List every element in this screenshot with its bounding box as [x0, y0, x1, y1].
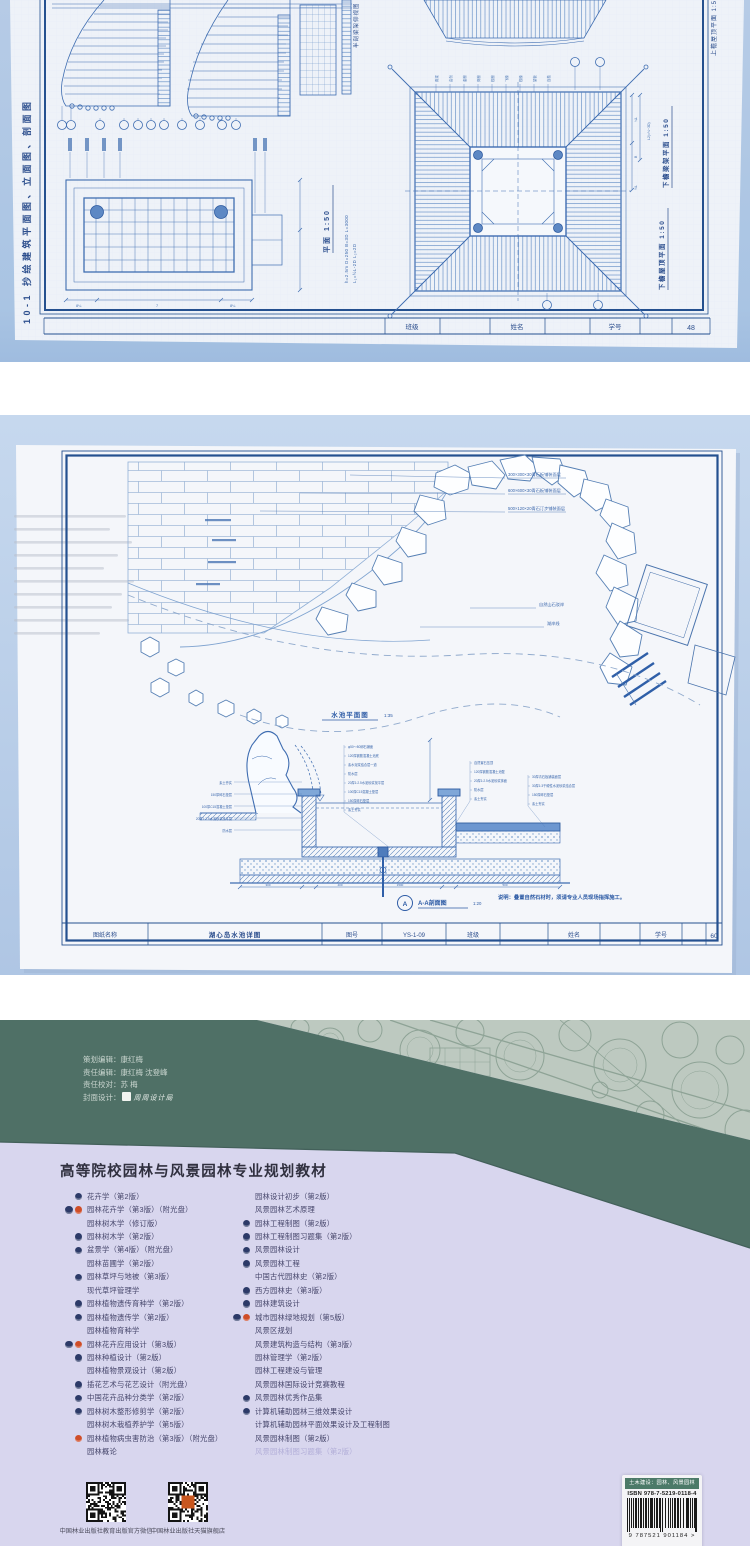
- section-title: A-A剖面图: [418, 899, 447, 907]
- series-badge-icon: [243, 1287, 251, 1295]
- book-list-item: 风景园林设计: [228, 1244, 498, 1257]
- book-list-item: 花卉学（第2版）: [60, 1190, 235, 1203]
- award-badge-icon: [243, 1314, 251, 1322]
- pond-plan-scale: 1:35: [384, 713, 393, 718]
- section-marker: A: [403, 901, 408, 908]
- name-cell-label: 姓名: [511, 322, 524, 331]
- series-badge-icon: [243, 1220, 251, 1228]
- svg-text:150厚碎石垫层: 150厚碎石垫层: [348, 798, 369, 803]
- book-title: 花卉学（第2版）: [87, 1192, 144, 1202]
- svg-text:檐椽: 檐椽: [518, 75, 523, 82]
- book-title: 园林管理学（第2版）: [255, 1353, 327, 1363]
- svg-text:防水层: 防水层: [474, 787, 484, 792]
- student-id-cell-label: 学号: [609, 322, 623, 331]
- book-list-item: 中国古代园林史（第2版）: [228, 1271, 498, 1284]
- series-badge-icon: [243, 1233, 251, 1241]
- editor-credits: 策划编辑：康红梅 责任编辑：康红梅 沈登峰 责任校对：苏 梅 封面设计：周周设计…: [83, 1054, 174, 1105]
- book-title: 风景园林国际设计竞赛教程: [255, 1380, 345, 1390]
- sheet-name-label: 图纸名称: [93, 931, 117, 939]
- book-title: 园林植物病虫害防治（第3版）（附光盘）: [87, 1434, 223, 1444]
- svg-text:素水泥浆结合层一道: 素水泥浆结合层一道: [348, 762, 377, 767]
- plan-note-1: h=2.5m D=250 B=3D L=3000: [344, 215, 349, 283]
- svg-text:自然置石压顶: 自然置石压顶: [474, 760, 494, 765]
- credit-line: 责任校对：苏 梅: [83, 1079, 174, 1092]
- book-back-cover: 策划编辑：康红梅 责任编辑：康红梅 沈登峰 责任校对：苏 梅 封面设计：周周设计…: [0, 1020, 750, 1546]
- page-number: 48: [687, 325, 695, 332]
- book-title: 园林花卉应用设计（第3版）: [87, 1340, 181, 1350]
- book-title: 风景园林制图（第2版）: [255, 1434, 334, 1444]
- book-title: 现代草坪管理学: [87, 1286, 139, 1296]
- book-list-item: 风景园林优秀作品集: [228, 1392, 498, 1405]
- book-title: 园林工程建设与管理: [255, 1366, 322, 1376]
- series-badge-icon: [75, 1354, 83, 1362]
- book-list-item: 园林花卉学（第3版）（附光盘）: [60, 1203, 235, 1216]
- series-badge-icon: [243, 1408, 251, 1416]
- book-list-item: 园林草坪与地被（第3版）: [60, 1271, 235, 1284]
- book-list-item: 风景园林国际设计竞赛教程: [228, 1378, 498, 1391]
- award-badge-icon: [75, 1206, 83, 1214]
- svg-text:望板: 望板: [532, 75, 537, 82]
- series-badge-icon: [65, 1206, 73, 1214]
- lower-roof-plan-label: 下檐屋顶平面 1:50: [657, 220, 666, 290]
- sheet-no-label: 图号: [346, 932, 358, 939]
- class-cell-label: 班级: [406, 322, 420, 331]
- tmall-store-qr-code: [168, 1482, 208, 1522]
- credit-line: 策划编辑：康红梅: [83, 1054, 174, 1067]
- book-list-item: 园林树木栽植养护学（第5版）: [60, 1418, 235, 1431]
- book-list-item: 计算机辅助园林三维效果设计: [228, 1405, 498, 1418]
- beam-plan-label: 下檐梁架平面 1:50: [661, 118, 670, 188]
- construction-note: 说明：叠置自然石材时，须请专业人员现场指挥施工。: [498, 893, 625, 901]
- textbook-sample-page-pond: 300×300×30青石板铺装面层 600×600×30青石板铺装面层 500×…: [0, 415, 750, 975]
- svg-text:300×300×30青石板铺装面层: 300×300×30青石板铺装面层: [508, 471, 561, 478]
- svg-text:飞椽: 飞椽: [504, 75, 509, 82]
- svg-text:7: 7: [156, 304, 158, 308]
- book-list-right-column: 园林设计初步（第2版） 风景园林艺术原理 园林工程制图（第2版） 园林工程制图习…: [228, 1190, 498, 1459]
- book-title: 风景园林制图习题集（第2版）: [255, 1447, 357, 1457]
- svg-text:连檐: 连檐: [546, 75, 551, 82]
- book-list-item: 插花艺术与花艺设计（附光盘）: [60, 1378, 235, 1391]
- svg-text:素土夯实: 素土夯实: [532, 801, 545, 806]
- series-badge-icon: [75, 1193, 83, 1201]
- book-list-item: 园林树木学（第2版）: [60, 1230, 235, 1243]
- series-badge-icon: [75, 1395, 83, 1403]
- book-title: 园林植物育种学: [87, 1326, 139, 1336]
- svg-text:防水层: 防水层: [222, 828, 232, 833]
- series-badge-icon: [75, 1314, 83, 1322]
- book-list-item: 计算机辅助园林平面效果设计及工程制图: [228, 1418, 498, 1431]
- book-list-item: 风景园林工程: [228, 1257, 498, 1270]
- book-title: 风景园林优秀作品集: [255, 1393, 322, 1403]
- page-number: 60: [710, 933, 718, 940]
- svg-text:L2(=⅓~3D): L2(=⅓~3D): [647, 122, 651, 140]
- book-list-item: 园林工程制图习题集（第2版）: [228, 1230, 498, 1243]
- book-title: 西方园林史（第3版）: [255, 1286, 327, 1296]
- credit-line: 责任编辑：康红梅 沈登峰: [83, 1067, 174, 1080]
- book-title: 园林种植设计（第2版）: [87, 1353, 166, 1363]
- book-list-item: 西方园林史（第3版）: [228, 1284, 498, 1297]
- series-badge-icon: [243, 1395, 251, 1403]
- series-badge-icon: [75, 1274, 83, 1282]
- book-title: 园林工程制图（第2版）: [255, 1219, 334, 1229]
- rafter-tick-labels: 角梁 由戗 金檩 脊檩 檐檩 飞椽 檐椽 望板 连檐: [434, 75, 551, 82]
- svg-text:金檩: 金檩: [462, 75, 467, 82]
- book-list-item: 园林工程建设与管理: [228, 1365, 498, 1378]
- series-badge-icon: [243, 1260, 251, 1268]
- ean-barcode: [627, 1498, 697, 1532]
- plan-note-2: L₁=½L-2D L₂=2D: [352, 244, 357, 284]
- section-scale: 1:20: [473, 901, 482, 906]
- book-title: 风景建筑构造与结构（第3版）: [255, 1340, 357, 1350]
- svg-text:100厚C15混凝土垫层: 100厚C15混凝土垫层: [202, 804, 232, 809]
- series-badge-icon: [75, 1408, 83, 1416]
- class-label: 班级: [467, 931, 479, 939]
- series-badge-icon: [75, 1300, 83, 1308]
- book-title: 园林工程制图习题集（第2版）: [255, 1232, 357, 1242]
- book-list-item: 园林建筑设计: [228, 1298, 498, 1311]
- pond-plan-title: 水池平面图: [331, 710, 369, 719]
- svg-text:¼L: ¼L: [634, 117, 638, 122]
- book-list-item: 风景园林制图（第2版）: [228, 1432, 498, 1445]
- book-list-item: 园林设计初步（第2版）: [228, 1190, 498, 1203]
- design-studio-logo-icon: [122, 1092, 131, 1101]
- award-badge-icon: [75, 1341, 83, 1349]
- svg-text:8¼: 8¼: [230, 304, 236, 308]
- book-list-item: 园林植物遗传育种学（第2版）: [60, 1298, 235, 1311]
- svg-text:20厚1:2.5水泥砂浆找平层: 20厚1:2.5水泥砂浆找平层: [196, 816, 232, 821]
- credit-line-design: 封面设计：周周设计局: [83, 1092, 174, 1106]
- svg-text:φ50～80卵石铺面: φ50～80卵石铺面: [348, 744, 373, 749]
- book-title: 风景园林工程: [255, 1259, 300, 1269]
- book-title: 园林花卉学（第3版）（附光盘）: [87, 1205, 193, 1215]
- book-list-item: 园林树木整形修剪学（第2版）: [60, 1405, 235, 1418]
- book-title: 园林苗圃学（第2版）: [87, 1259, 159, 1269]
- svg-text:由戗: 由戗: [448, 75, 453, 82]
- svg-text:20厚1:2.5水泥砂浆抹面: 20厚1:2.5水泥砂浆抹面: [474, 778, 507, 783]
- award-badge-icon: [75, 1435, 83, 1443]
- svg-text:素土夯实: 素土夯实: [474, 796, 487, 801]
- series-badge-icon: [65, 1341, 73, 1349]
- book-title: 城市园林绿地规划（第5版）: [255, 1313, 349, 1323]
- book-list-item: 园林树木学（修订版）: [60, 1217, 235, 1230]
- svg-text:120厚钢筋混凝土池壁: 120厚钢筋混凝土池壁: [474, 769, 506, 774]
- book-list-item: 中国花卉品种分类学（第2版）: [60, 1392, 235, 1405]
- book-title: 园林植物遗传育种学（第2版）: [87, 1299, 189, 1309]
- book-title: 风景园林艺术原理: [255, 1205, 315, 1215]
- wechat-qr-code: [86, 1482, 126, 1522]
- svg-text:1500: 1500: [397, 883, 404, 887]
- book-title: 中国花卉品种分类学（第2版）: [87, 1393, 189, 1403]
- isbn-barcode-block: 土木建设：园林、风景园林 ISBN 978-7-5219-0118-4 9 78…: [622, 1475, 702, 1546]
- svg-text:自然山石驳岸: 自然山石驳岸: [539, 601, 564, 608]
- book-list-item: 风景园林艺术原理: [228, 1203, 498, 1216]
- sheet-name-value: 湖心岛水池详图: [209, 930, 262, 939]
- svg-text:400: 400: [337, 883, 342, 887]
- book-title: 风景区规划: [255, 1326, 292, 1336]
- series-title: 高等院校园林与风景园林专业规划教材: [60, 1160, 327, 1181]
- book-title: 园林草坪与地被（第3版）: [87, 1272, 174, 1282]
- svg-text:600×600×30青石板铺装面层: 600×600×30青石板铺装面层: [508, 487, 561, 494]
- plan-title-label: 平面 1:50: [323, 209, 331, 253]
- svg-text:150厚碎石垫层: 150厚碎石垫层: [211, 792, 232, 797]
- barcode-digits: 9 787521 901184 >: [622, 1533, 702, 1539]
- upper-roof-plan-label: 上檐屋顶平面 1:50: [710, 0, 718, 56]
- book-list-left-column: 花卉学（第2版） 园林花卉学（第3版）（附光盘） 园林树木学（修订版） 园林树木…: [60, 1190, 235, 1459]
- book-list-item: 风景建筑构造与结构（第3版）: [228, 1338, 498, 1351]
- book-list-item: 园林概论: [60, 1445, 235, 1458]
- name-label: 姓名: [568, 931, 580, 939]
- book-title: 园林树木学（修订版）: [87, 1219, 162, 1229]
- book-list-item: 园林植物遗传学（第2版）: [60, 1311, 235, 1324]
- series-badge-icon: [233, 1314, 241, 1322]
- svg-text:檐檩: 檐檩: [490, 75, 495, 82]
- series-badge-icon: [243, 1300, 251, 1308]
- svg-text:8¼: 8¼: [76, 304, 82, 308]
- svg-text:100厚C15混凝土垫层: 100厚C15混凝土垫层: [348, 789, 378, 794]
- book-title: 盆景学（第4版）（附光盘）: [87, 1245, 178, 1255]
- svg-text:防水层: 防水层: [348, 771, 358, 776]
- svg-text:300: 300: [265, 883, 270, 887]
- sheet-no-value: YS-1-09: [403, 933, 426, 939]
- book-list-item: 园林种植设计（第2版）: [60, 1351, 235, 1364]
- book-title: 园林树木整形修剪学（第2版）: [87, 1407, 189, 1417]
- svg-text:脊檩: 脊檩: [476, 75, 481, 82]
- svg-text:素土夯实: 素土夯实: [219, 780, 232, 785]
- qr-caption-tmall: 中国林业出版社天猫旗舰店: [140, 1526, 236, 1535]
- book-title: 中国古代园林史（第2版）: [255, 1272, 342, 1282]
- book-list-item: 园林花卉应用设计（第3版）: [60, 1338, 235, 1351]
- book-list-item: 风景区规划: [228, 1324, 498, 1337]
- half-section-label: 半剖梁架仰视图: [352, 2, 360, 48]
- svg-text:角梁: 角梁: [434, 75, 439, 82]
- book-title: 园林植物景观设计（第2版）: [87, 1366, 181, 1376]
- book-title: 插花艺术与花艺设计（附光盘）: [87, 1380, 192, 1390]
- book-title: 园林树木学（第2版）: [87, 1232, 159, 1242]
- sheet-side-title: 10-1 抄绘建筑平面图、立面图、剖面图: [21, 98, 32, 324]
- book-title: 园林概论: [87, 1447, 117, 1457]
- book-list-item: 园林植物育种学: [60, 1324, 235, 1337]
- book-title: 园林设计初步（第2版）: [255, 1192, 334, 1202]
- book-title: 计算机辅助园林三维效果设计: [255, 1407, 352, 1417]
- series-badge-icon: [243, 1247, 251, 1255]
- svg-text:湖岸线: 湖岸线: [547, 620, 560, 627]
- series-badge-icon: [75, 1247, 83, 1255]
- book-list-item: 园林管理学（第2版）: [228, 1351, 498, 1364]
- isbn-text: ISBN 978-7-5219-0118-4: [622, 1491, 702, 1497]
- book-list-item: 盆景学（第4版）（附光盘）: [60, 1244, 235, 1257]
- book-title: 园林树木栽植养护学（第5版）: [87, 1420, 189, 1430]
- series-badge-icon: [75, 1233, 83, 1241]
- book-list-item: 风景园林制图习题集（第2版）: [228, 1445, 498, 1458]
- svg-text:20厚1:2.5水泥砂浆找平层: 20厚1:2.5水泥砂浆找平层: [348, 780, 384, 785]
- category-strip: 土木建设：园林、风景园林: [625, 1478, 699, 1489]
- svg-text:30厚1:3干硬性水泥砂浆结合层: 30厚1:3干硬性水泥砂浆结合层: [532, 783, 575, 788]
- series-badge-icon: [75, 1381, 83, 1389]
- svg-text:150厚碎石垫层: 150厚碎石垫层: [532, 792, 553, 797]
- book-title: 计算机辅助园林平面效果设计及工程制图: [255, 1420, 390, 1430]
- book-list-item: 园林工程制图（第2版）: [228, 1217, 498, 1230]
- book-list-item: 现代草坪管理学: [60, 1284, 235, 1297]
- book-list-item: 园林苗圃学（第2版）: [60, 1257, 235, 1270]
- book-title: 园林建筑设计: [255, 1299, 300, 1309]
- svg-text:500×120×20青石汀步铺装面层: 500×120×20青石汀步铺装面层: [508, 505, 565, 512]
- id-label: 学号: [655, 931, 667, 939]
- svg-text:120厚钢筋混凝土池底: 120厚钢筋混凝土池底: [348, 753, 380, 758]
- svg-text:30厚青石板铺装面层: 30厚青石板铺装面层: [532, 774, 561, 779]
- svg-text:500: 500: [502, 883, 507, 887]
- svg-text:½L: ½L: [634, 185, 638, 190]
- product-detail-image: 10-1 抄绘建筑平面图、立面图、剖面图 半剖梁架仰视图 平面 1:50 h=2…: [0, 0, 750, 1546]
- book-list-item: 园林植物景观设计（第2版）: [60, 1365, 235, 1378]
- book-list-item: 园林植物病虫害防治（第3版）（附光盘）: [60, 1432, 235, 1445]
- svg-text:素土夯实: 素土夯实: [348, 807, 361, 812]
- book-title: 园林植物遗传学（第2版）: [87, 1313, 174, 1323]
- book-title: 风景园林设计: [255, 1245, 300, 1255]
- textbook-sample-page-pavilion: 10-1 抄绘建筑平面图、立面图、剖面图 半剖梁架仰视图 平面 1:50 h=2…: [0, 0, 750, 362]
- book-list-item: 城市园林绿地规划（第5版）: [228, 1311, 498, 1324]
